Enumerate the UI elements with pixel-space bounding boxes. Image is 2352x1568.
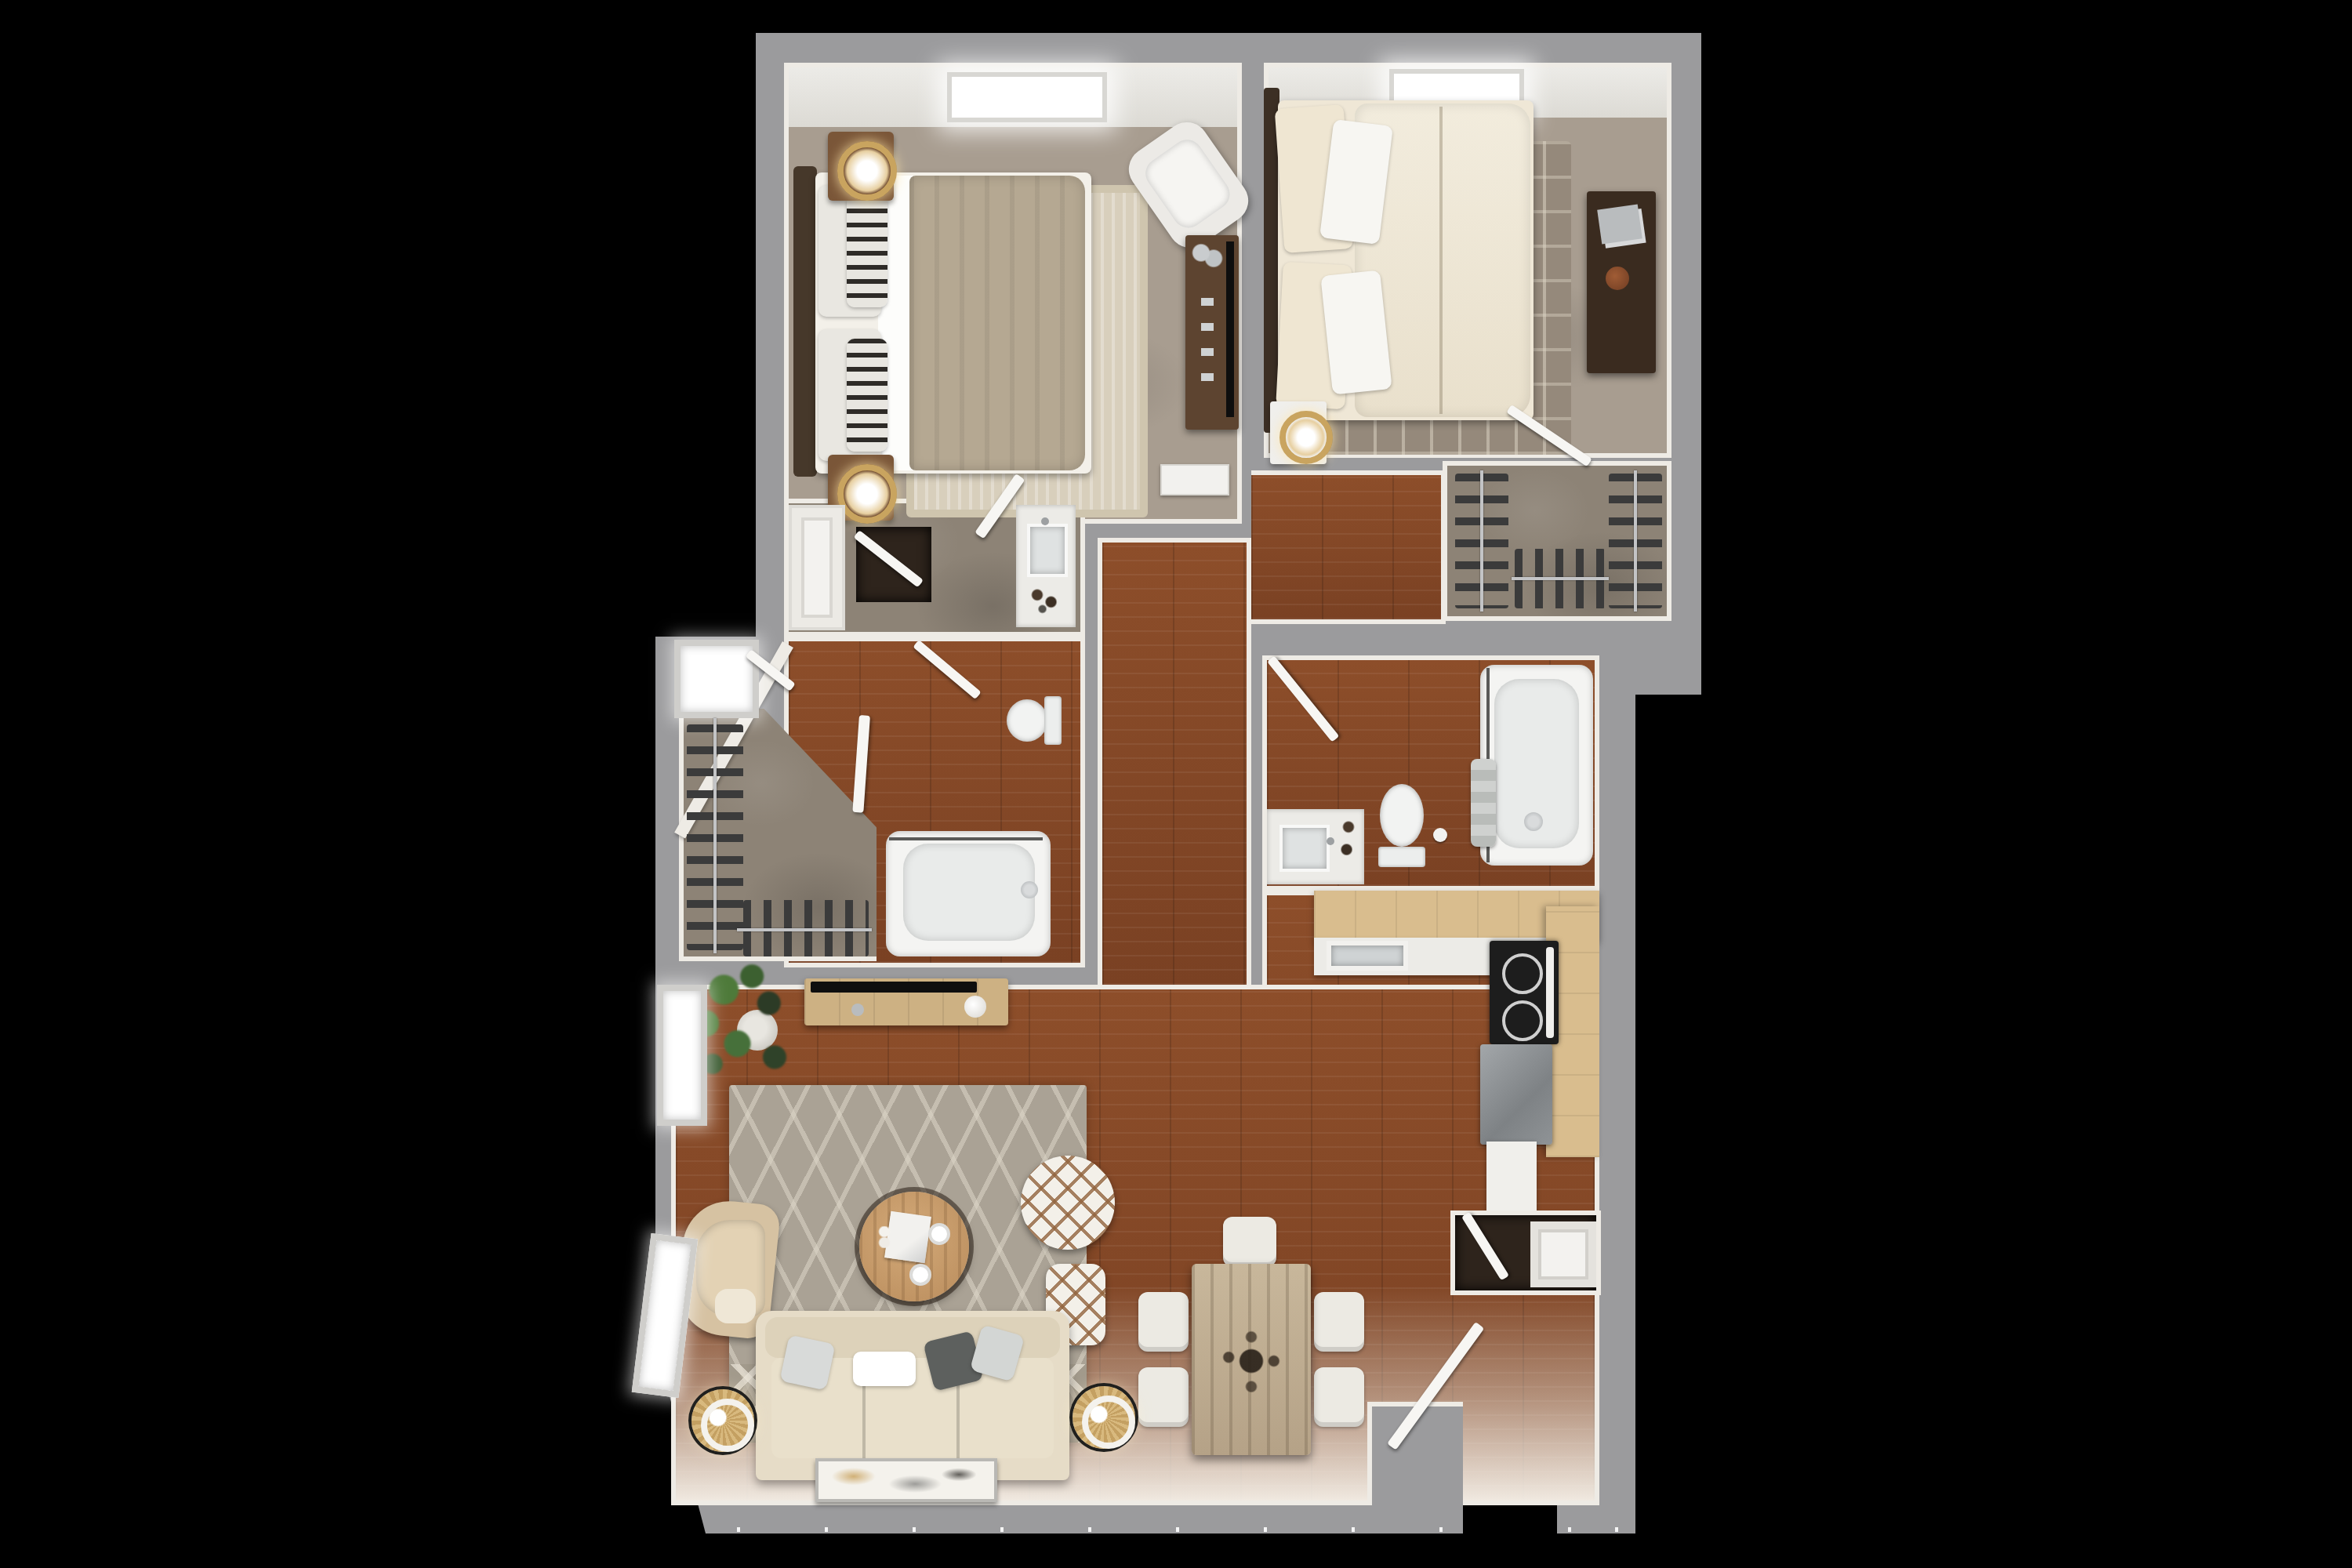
tray-magazine bbox=[884, 1211, 931, 1264]
range-handle bbox=[1546, 947, 1554, 1038]
dining-table bbox=[1192, 1264, 1311, 1455]
tub-faucet bbox=[1524, 812, 1543, 831]
closet-1-window bbox=[674, 640, 759, 718]
burner bbox=[1502, 953, 1543, 994]
pillow bbox=[1320, 270, 1392, 394]
headboard bbox=[793, 166, 817, 477]
floor-plan-stage bbox=[0, 0, 2352, 1568]
dining-chair bbox=[1138, 1367, 1189, 1427]
throw-blanket bbox=[909, 176, 1085, 470]
closet-rod bbox=[1480, 470, 1483, 612]
exterior-window-frames bbox=[1568, 1527, 1631, 1532]
decor-cup bbox=[851, 1004, 864, 1016]
striped-pillow bbox=[847, 194, 887, 307]
lamp-ring bbox=[701, 1399, 754, 1452]
duvet-seam bbox=[1439, 107, 1443, 414]
bedroom-1-bed bbox=[793, 172, 1091, 474]
bedroom-2-dresser bbox=[1587, 191, 1656, 373]
striped-pillow bbox=[847, 339, 887, 452]
lamp-ring bbox=[1082, 1396, 1135, 1449]
hall-vanity bbox=[1016, 505, 1076, 627]
closet-rod bbox=[713, 718, 717, 953]
closet-rod bbox=[1512, 577, 1609, 580]
bathroom-1-toilet-bowl bbox=[1007, 699, 1047, 742]
cup bbox=[931, 1226, 947, 1242]
vase bbox=[964, 996, 986, 1018]
dining-chair bbox=[1138, 1292, 1189, 1352]
dining-chair bbox=[1314, 1367, 1364, 1427]
bedroom-1-media-dresser bbox=[1185, 235, 1239, 430]
floor-lamp bbox=[1073, 1386, 1135, 1449]
hallway bbox=[1098, 538, 1251, 985]
sink bbox=[1027, 524, 1068, 577]
decor-balls bbox=[878, 1226, 891, 1248]
dining-chair bbox=[1314, 1292, 1364, 1352]
floor-art bbox=[815, 1458, 997, 1502]
books bbox=[1597, 205, 1642, 245]
stainless-appliance bbox=[1480, 1044, 1552, 1145]
towels bbox=[1471, 759, 1496, 847]
linen-closet-doors bbox=[789, 505, 845, 630]
round-pouf bbox=[1021, 1156, 1115, 1250]
ring-lamp bbox=[837, 141, 897, 201]
faucet bbox=[1041, 517, 1049, 525]
coffee-table bbox=[859, 1192, 969, 1301]
hallway-branch bbox=[1251, 470, 1446, 624]
bathroom-2-toilet-tank bbox=[1378, 847, 1425, 867]
decor-objects bbox=[1201, 298, 1214, 392]
toiletries bbox=[1339, 818, 1358, 875]
cup bbox=[913, 1267, 928, 1283]
sofa-pillow bbox=[853, 1352, 916, 1386]
media-console bbox=[804, 978, 1008, 1025]
sofa-pillow bbox=[779, 1334, 835, 1390]
tv bbox=[811, 982, 977, 993]
decor-flowers bbox=[1192, 241, 1223, 270]
bedroom-2-bed bbox=[1264, 88, 1534, 433]
table-centerpiece bbox=[1214, 1323, 1289, 1399]
faucet bbox=[1327, 837, 1334, 845]
chair-pillow bbox=[715, 1289, 756, 1323]
bathroom-1-bathtub bbox=[886, 831, 1051, 956]
toiletries bbox=[1029, 586, 1063, 615]
sink bbox=[1279, 825, 1330, 872]
floor-lamp bbox=[691, 1389, 754, 1452]
living-window bbox=[657, 985, 707, 1126]
closet-rod bbox=[737, 928, 872, 931]
bathroom-2-vanity bbox=[1267, 809, 1364, 884]
closet-rod bbox=[1634, 470, 1637, 612]
kitchen-sink bbox=[1327, 941, 1408, 971]
bedroom-1-ceiling-light bbox=[947, 72, 1107, 122]
tub-faucet bbox=[1021, 881, 1038, 898]
clay-pot bbox=[1606, 267, 1629, 290]
range-cooktop bbox=[1490, 941, 1559, 1044]
ring-lamp bbox=[837, 464, 897, 524]
bathroom-2-bathtub bbox=[1480, 665, 1593, 866]
toilet-paper bbox=[1433, 828, 1447, 842]
burner bbox=[1502, 1000, 1543, 1041]
bathroom-2-toilet-bowl bbox=[1380, 784, 1424, 847]
ring-lamp bbox=[1279, 411, 1333, 464]
bathroom-1-toilet-tank bbox=[1044, 696, 1062, 745]
shower-rod bbox=[889, 837, 1043, 840]
tv bbox=[1226, 241, 1234, 417]
sofa bbox=[756, 1311, 1069, 1480]
exterior-window-frames bbox=[737, 1527, 1458, 1532]
tub-interior bbox=[903, 844, 1035, 941]
coat-closet-door bbox=[1530, 1221, 1596, 1287]
baseboard-heater bbox=[1160, 464, 1229, 495]
dining-chair bbox=[1223, 1217, 1276, 1267]
